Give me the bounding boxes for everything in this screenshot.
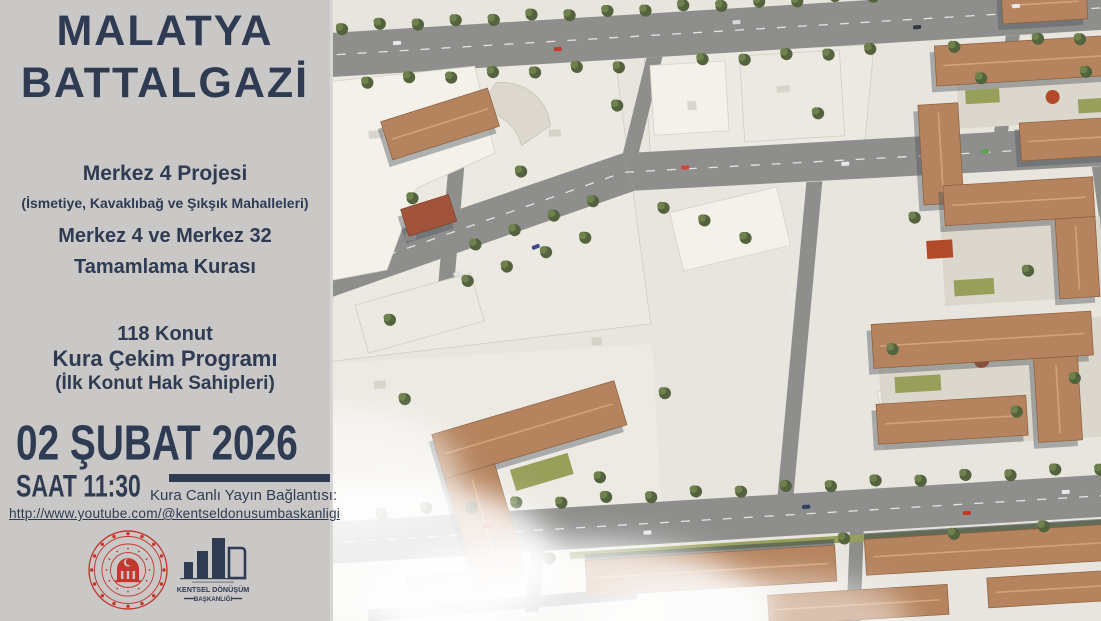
event-program: Kura Çekim Programı [0,348,330,370]
project-neighbourhoods: (İsmetiye, Kavaklıbağ ve Şıkşık Mahallel… [0,196,330,210]
aerial-render-map [330,0,1101,621]
logo-row: KENTSEL DÖNÜŞÜM BAŞKANLIĞI [0,526,330,616]
project-phases: Merkez 4 ve Merkez 32 [0,226,330,246]
agency-name-line1: KENTSEL DÖNÜŞÜM [177,585,250,594]
announcement-poster: MALATYA BATTALGAZİ Merkez 4 Projesi (İsm… [0,0,1101,621]
agency-logo: KENTSEL DÖNÜŞÜM BAŞKANLIĞI [168,528,258,612]
project-completion-draw: Tamamlama Kurası [0,257,330,277]
event-units: 118 Konut [0,324,330,344]
ministry-seal-icon [86,528,170,612]
event-time: SAAT 11:30 [16,469,141,505]
stream-label: Kura Canlı Yayın Bağlantısı: [150,487,330,504]
poster-title-line2: BATTALGAZİ [0,62,330,105]
poster-title-line1: MALATYA [0,10,330,53]
agency-name-line2: BAŞKANLIĞI [194,595,233,603]
stream-url-link[interactable]: http://www.youtube.com/@kentseldonusumba… [9,506,340,521]
event-date: 02 ŞUBAT 2026 [16,417,298,472]
event-beneficiaries: (İlk Konut Hak Sahipleri) [0,374,330,393]
divider-bar [169,474,330,482]
project-name: Merkez 4 Projesi [0,163,330,184]
info-panel: MALATYA BATTALGAZİ Merkez 4 Projesi (İsm… [0,0,333,621]
